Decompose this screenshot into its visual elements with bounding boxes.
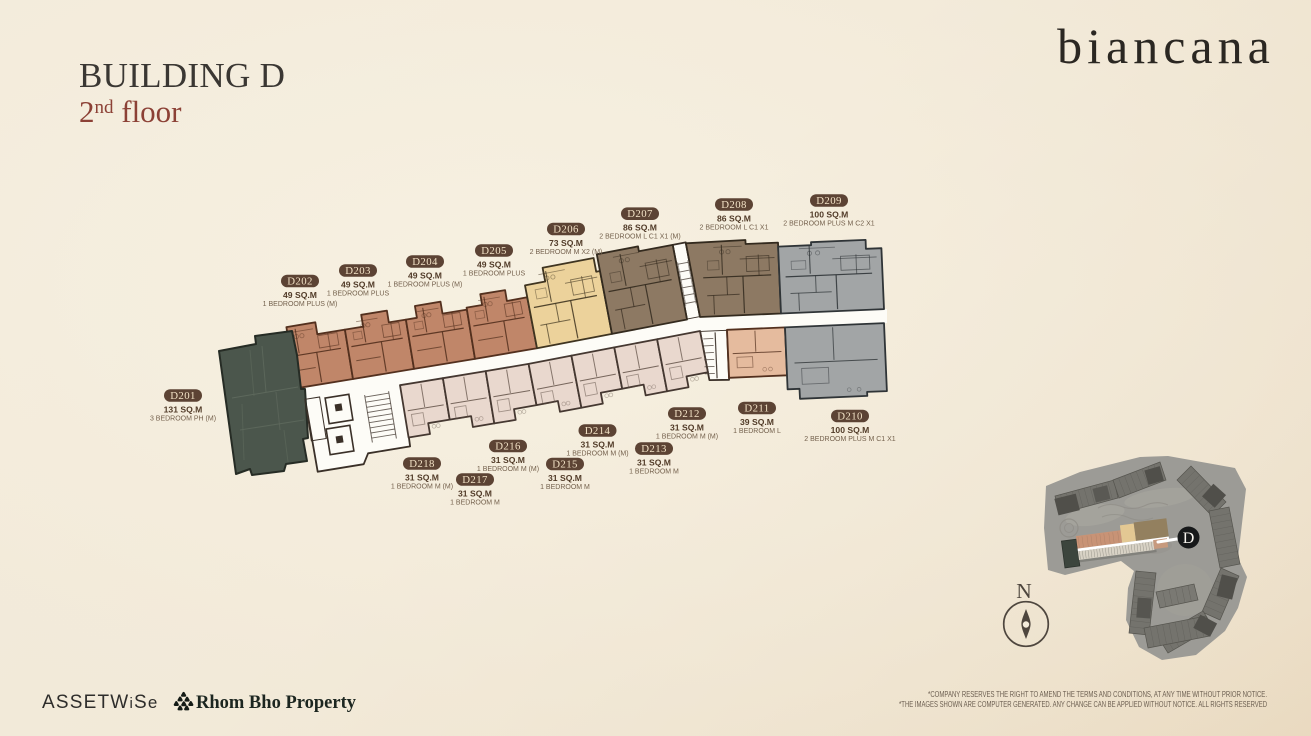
svg-text:31 SQ.M: 31 SQ.M bbox=[405, 473, 439, 483]
svg-text:ASSETWiSe: ASSETWiSe bbox=[42, 692, 159, 713]
svg-text:D210: D210 bbox=[837, 411, 863, 423]
svg-text:D205: D205 bbox=[481, 245, 507, 257]
svg-text:D204: D204 bbox=[412, 256, 438, 268]
svg-text:31 SQ.M: 31 SQ.M bbox=[637, 458, 671, 468]
svg-text:86 SQ.M: 86 SQ.M bbox=[623, 223, 657, 233]
svg-text:2 BEDROOM M X2 (M): 2 BEDROOM M X2 (M) bbox=[530, 249, 603, 256]
svg-text:1 BEDROOM M (M): 1 BEDROOM M (M) bbox=[477, 466, 539, 473]
svg-text:D207: D207 bbox=[627, 208, 653, 220]
svg-text:39 SQ.M: 39 SQ.M bbox=[740, 417, 774, 427]
svg-text:D209: D209 bbox=[816, 195, 842, 207]
svg-text:1 BEDROOM M (M): 1 BEDROOM M (M) bbox=[656, 433, 718, 440]
svg-text:D208: D208 bbox=[721, 199, 747, 211]
svg-text:1 BEDROOM L: 1 BEDROOM L bbox=[733, 428, 781, 435]
svg-text:100 SQ.M: 100 SQ.M bbox=[810, 210, 849, 220]
svg-text:D217: D217 bbox=[462, 474, 488, 486]
svg-text:*COMPANY RESERVES THE RIGHT TO: *COMPANY RESERVES THE RIGHT TO AMEND THE… bbox=[928, 689, 1267, 699]
svg-text:D211: D211 bbox=[744, 403, 769, 415]
svg-text:100 SQ.M: 100 SQ.M bbox=[831, 425, 870, 435]
svg-text:31 SQ.M: 31 SQ.M bbox=[491, 455, 525, 465]
svg-text:31 SQ.M: 31 SQ.M bbox=[458, 489, 492, 499]
svg-text:3 BEDROOM PH (M): 3 BEDROOM PH (M) bbox=[150, 415, 216, 422]
svg-text:2 BEDROOM L C1 X1 (M): 2 BEDROOM L C1 X1 (M) bbox=[599, 234, 680, 241]
svg-text:D: D bbox=[1183, 530, 1195, 547]
svg-text:49 SQ.M: 49 SQ.M bbox=[408, 271, 442, 281]
svg-text:D212: D212 bbox=[674, 408, 700, 420]
svg-text:1 BEDROOM PLUS: 1 BEDROOM PLUS bbox=[463, 270, 526, 277]
svg-text:49 SQ.M: 49 SQ.M bbox=[283, 290, 317, 300]
svg-text:D203: D203 bbox=[345, 265, 371, 277]
svg-text:31 SQ.M: 31 SQ.M bbox=[670, 423, 704, 433]
svg-text:73 SQ.M: 73 SQ.M bbox=[549, 238, 583, 248]
svg-text:D213: D213 bbox=[641, 443, 667, 455]
svg-text:1 BEDROOM PLUS: 1 BEDROOM PLUS bbox=[327, 290, 390, 297]
svg-text:2 BEDROOM PLUS M C2 X1: 2 BEDROOM PLUS M C2 X1 bbox=[783, 220, 875, 227]
svg-text:D206: D206 bbox=[553, 224, 579, 236]
svg-text:1 BEDROOM M (M): 1 BEDROOM M (M) bbox=[391, 483, 453, 490]
svg-text:31 SQ.M: 31 SQ.M bbox=[581, 440, 615, 450]
svg-text:31 SQ.M: 31 SQ.M bbox=[548, 473, 582, 483]
svg-text:1 BEDROOM M: 1 BEDROOM M bbox=[540, 484, 590, 491]
svg-text:2 BEDROOM L C1 X1: 2 BEDROOM L C1 X1 bbox=[700, 224, 769, 231]
svg-text:D202: D202 bbox=[287, 276, 313, 288]
svg-text:D216: D216 bbox=[495, 441, 521, 453]
svg-text:2nd floor: 2nd floor bbox=[79, 94, 182, 129]
svg-text:*THE IMAGES SHOWN ARE COMPUTER: *THE IMAGES SHOWN ARE COMPUTER GENERATED… bbox=[899, 699, 1267, 709]
svg-text:N: N bbox=[1016, 579, 1032, 603]
svg-text:Rhom Bho Property: Rhom Bho Property bbox=[196, 693, 357, 713]
svg-text:1 BEDROOM M (M): 1 BEDROOM M (M) bbox=[566, 450, 628, 457]
svg-text:1 BEDROOM PLUS (M): 1 BEDROOM PLUS (M) bbox=[263, 301, 338, 308]
svg-text:1 BEDROOM PLUS (M): 1 BEDROOM PLUS (M) bbox=[388, 281, 463, 288]
svg-text:1 BEDROOM M: 1 BEDROOM M bbox=[629, 468, 679, 475]
svg-text:49 SQ.M: 49 SQ.M bbox=[341, 280, 375, 290]
svg-text:D201: D201 bbox=[170, 390, 196, 402]
svg-text:131 SQ.M: 131 SQ.M bbox=[164, 405, 203, 415]
svg-text:49 SQ.M: 49 SQ.M bbox=[477, 260, 511, 270]
svg-text:D215: D215 bbox=[552, 459, 578, 471]
svg-text:2 BEDROOM PLUS M C1 X1: 2 BEDROOM PLUS M C1 X1 bbox=[804, 436, 896, 443]
svg-text:D218: D218 bbox=[409, 458, 435, 470]
svg-text:86 SQ.M: 86 SQ.M bbox=[717, 214, 751, 224]
svg-text:D214: D214 bbox=[585, 425, 611, 437]
svg-text:BUILDING D: BUILDING D bbox=[79, 56, 285, 95]
svg-text:1 BEDROOM M: 1 BEDROOM M bbox=[450, 499, 500, 506]
svg-text:biancana: biancana bbox=[1057, 18, 1275, 74]
